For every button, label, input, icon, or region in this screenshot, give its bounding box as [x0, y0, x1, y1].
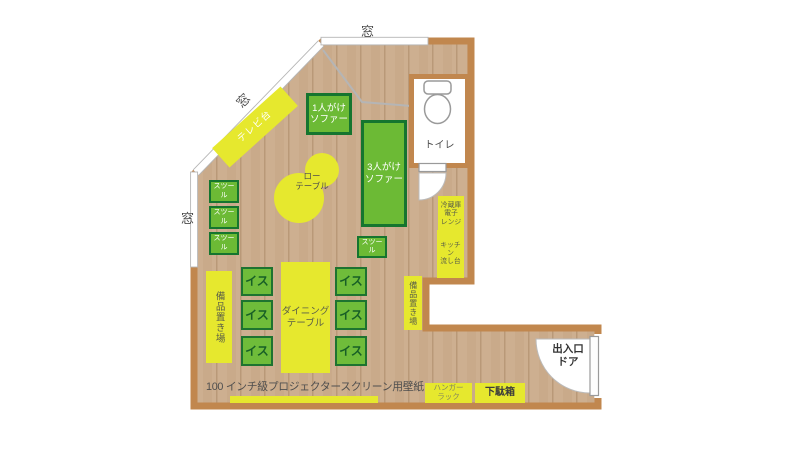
low-table-label: ロー テーブル [286, 171, 338, 191]
floor-plan: 窓 窓 窓 テレビ台 1人がけ ソファー 3人がけ ソファー ロー テーブル ス… [0, 0, 800, 450]
stool-center: スツール [357, 236, 387, 258]
storage-right: 備品置き場 [404, 276, 422, 330]
window-label-top: 窓 [361, 24, 374, 40]
window-top [321, 37, 428, 45]
entrance-door-panel [590, 337, 599, 396]
projector-screen-bar [230, 396, 378, 403]
toilet-door-panel [419, 164, 446, 172]
toilet-bowl-icon [425, 95, 451, 124]
toilet-tank-icon [424, 81, 451, 94]
chair-1: イス [241, 267, 273, 296]
chair-6: イス [335, 336, 367, 366]
hanger-rack: ハンガー ラック [425, 383, 472, 403]
projector-note: 100 インチ級プロジェクタースクリーン用壁紙 [206, 381, 424, 394]
stool-2: スツール [209, 206, 239, 229]
chair-4: イス [335, 267, 367, 296]
shoe-box: 下駄箱 [475, 383, 525, 403]
toilet-label: トイレ [413, 140, 466, 152]
sofa-3seat: 3人がけ ソファー [361, 120, 407, 227]
entrance-door-label: 出入口 ドア [545, 343, 591, 368]
kitchen-sink: キッチン 流し台 [437, 230, 464, 278]
window-label-left: 窓 [181, 211, 194, 227]
sofa-1seat: 1人がけ ソファー [306, 93, 352, 135]
dining-table: ダイニング テーブル [281, 262, 330, 373]
chair-2: イス [241, 300, 273, 330]
chair-5: イス [335, 300, 367, 330]
stool-3: スツール [209, 232, 239, 255]
fridge-microwave: 冷蔵庫 電子 レンジ [438, 196, 464, 233]
stool-1: スツール [209, 180, 239, 203]
storage-left: 備品置き場 [206, 271, 232, 363]
chair-3: イス [241, 336, 273, 366]
